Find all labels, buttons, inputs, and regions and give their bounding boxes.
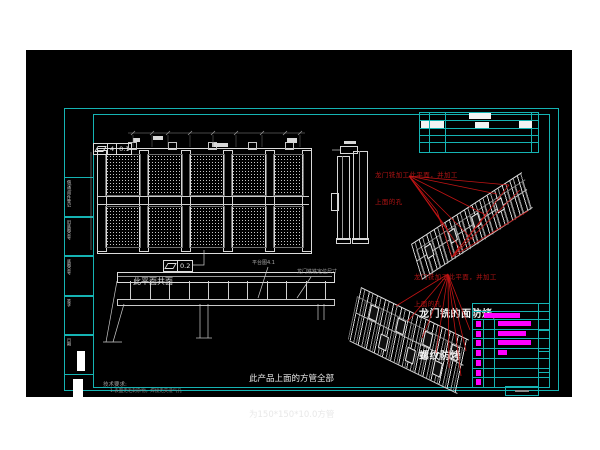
elevation-post xyxy=(247,281,248,299)
elevation-post xyxy=(228,281,229,299)
note-square-tube: 此产品上面的方管全部 为150*150*10.0方管 xyxy=(249,349,334,445)
header-cell-filled xyxy=(421,121,429,128)
note-mill-dim: 龙门铣铣定位尺寸 xyxy=(297,268,337,275)
header-cell-filled xyxy=(430,121,444,128)
section-foot xyxy=(352,238,369,244)
dim-label-bar xyxy=(212,143,228,147)
flatness-symbol-icon xyxy=(94,144,108,154)
border-strip: 借(通)用件登记旧底图总号底图总号签字日期 xyxy=(64,177,94,375)
plan-mid-rail xyxy=(98,196,309,197)
dim-label-bar xyxy=(344,141,356,144)
border-strip-label: 底图总号 xyxy=(67,259,72,275)
title-block-text-bar xyxy=(498,350,507,355)
plan-mesh-panel xyxy=(231,154,267,196)
elevation-post xyxy=(267,281,268,299)
title-block-mark xyxy=(476,360,481,366)
gdt-datum: 4 xyxy=(108,144,117,154)
border-strip-label: 旧底图总号 xyxy=(67,220,72,240)
header-cell-filled xyxy=(475,122,489,128)
plan-mesh-panel xyxy=(147,154,183,196)
border-strip-label: 签字 xyxy=(67,299,72,307)
red-note-line1: 龙门铣加工此平面，并加工 xyxy=(375,171,458,180)
plan-mesh-panel xyxy=(189,206,225,248)
tube-note-line2: 为150*150*10.0方管 xyxy=(249,409,334,421)
section-line xyxy=(359,151,360,238)
plan-mesh-panel xyxy=(105,206,141,248)
gdt-tolerance: 0.2 xyxy=(178,261,192,271)
red-note-upper: 龙门铣加工此平面，并加工 上面的孔 xyxy=(375,153,458,225)
dim-label-bar xyxy=(287,138,297,143)
gdt-tolerance: 0.1 xyxy=(117,144,131,154)
elevation-post xyxy=(208,281,209,299)
title-block-mark xyxy=(476,379,481,385)
border-white-block xyxy=(73,379,83,397)
title-block-text-bar xyxy=(498,331,526,336)
title-block-mark xyxy=(476,370,481,376)
tech-req-item: 1.表面无毛刺杂物，焊接无夹渣气孔 xyxy=(110,388,182,394)
title-block-sheet-box xyxy=(505,386,539,396)
gdt-frame-flatness-mid: 0.2 xyxy=(163,260,193,272)
tech-req-title: 技术要求: xyxy=(103,380,127,388)
border-strip-label: 日期 xyxy=(67,338,72,346)
flatness-symbol-icon xyxy=(164,261,178,271)
elevation-post xyxy=(286,281,287,299)
elevation-post xyxy=(325,281,326,299)
border-strip-cell: 借(通)用件登记 xyxy=(64,177,93,217)
cad-drawing-page: 借(通)用件登记旧底图总号底图总号签字日期 xyxy=(0,0,600,450)
plan-mesh-panel xyxy=(273,206,304,248)
plan-top-tab xyxy=(285,142,294,150)
plan-top-tab xyxy=(168,142,177,150)
note-coplanar: 此平面共面 xyxy=(133,276,173,287)
plan-mesh-panel xyxy=(273,154,304,196)
section-line xyxy=(342,156,343,238)
border-strip-cell: 签字 xyxy=(64,296,93,336)
title-block-text-bar xyxy=(498,321,531,326)
border-strip-label: 借(通)用件登记 xyxy=(67,180,72,207)
plan-mesh-panel xyxy=(189,154,225,196)
red-note-line2: 上面的孔 xyxy=(375,198,458,207)
plan-mid-rail xyxy=(98,204,309,205)
border-strip-cell: 底图总号 xyxy=(64,256,93,296)
elevation-post xyxy=(306,281,307,299)
note-platform-ref: 平台图4.1 xyxy=(252,259,275,266)
title-block-mark xyxy=(476,331,481,337)
plan-top-tab xyxy=(248,142,257,150)
title-block-text-bar xyxy=(498,340,531,345)
border-strip-cell: 旧底图总号 xyxy=(64,217,93,257)
header-cell-filled xyxy=(469,113,491,119)
header-table xyxy=(419,112,539,153)
dim-label-bar xyxy=(153,136,163,140)
tube-note-line1: 此产品上面的方管全部 xyxy=(249,373,334,385)
elevation-bottom-rail xyxy=(117,299,335,306)
section-foot xyxy=(336,238,351,244)
section-tab xyxy=(331,193,339,211)
section-column-right xyxy=(353,151,368,240)
elevation-post xyxy=(130,281,131,299)
gdt-frame-flatness-top: 4 0.1 xyxy=(93,143,132,155)
title-block-mark xyxy=(476,321,481,327)
plan-mesh-panel xyxy=(105,154,141,196)
plan-mesh-panel xyxy=(231,206,267,248)
title-block-mark xyxy=(476,340,481,346)
border-white-block xyxy=(77,351,85,371)
title-block xyxy=(472,303,550,388)
dim-label-bar xyxy=(133,138,140,142)
title-block-mark xyxy=(476,350,481,356)
plan-mesh-panel xyxy=(147,206,183,248)
sheet-text-bar xyxy=(515,390,529,392)
elevation-post xyxy=(189,281,190,299)
title-block-company-text xyxy=(484,313,520,318)
header-cell-filled xyxy=(519,121,532,128)
